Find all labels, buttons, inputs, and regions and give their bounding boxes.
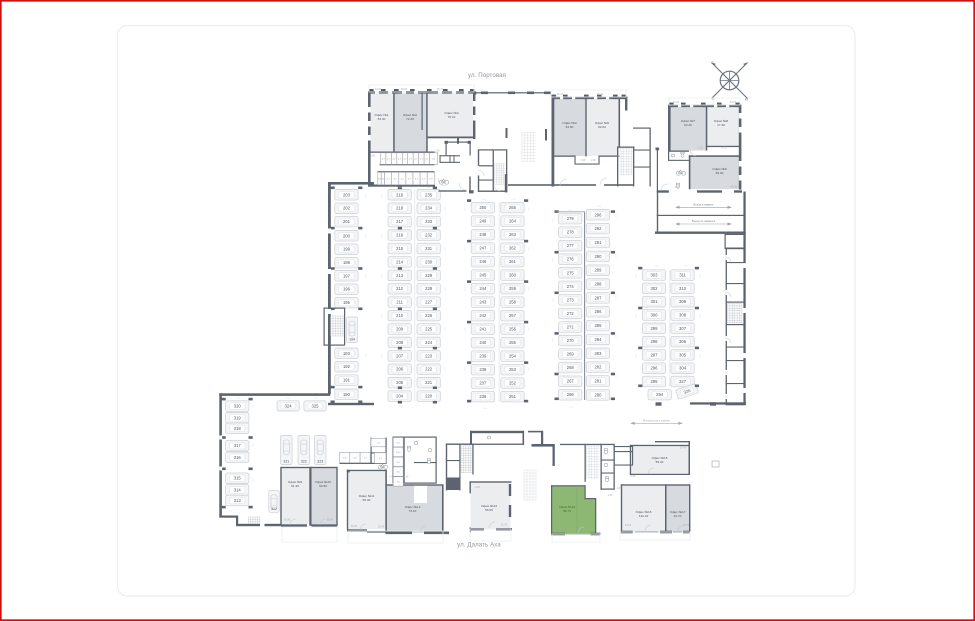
svg-text:192: 192 [343, 364, 351, 369]
svg-text:230: 230 [425, 259, 433, 264]
svg-text:316: 316 [234, 455, 242, 460]
svg-text:193: 193 [343, 351, 351, 356]
svg-text:307: 307 [679, 326, 687, 331]
svg-text:294: 294 [656, 392, 664, 397]
svg-text:268: 268 [567, 365, 575, 370]
svg-text:245: 245 [479, 273, 487, 278]
svg-text:223: 223 [425, 353, 433, 358]
svg-text:229: 229 [425, 273, 433, 278]
svg-text:281: 281 [594, 378, 602, 383]
svg-text:315: 315 [234, 476, 242, 481]
svg-text:54.29: 54.29 [625, 524, 632, 527]
svg-text:44.26: 44.26 [730, 101, 737, 104]
svg-text:69.00: 69.00 [557, 93, 564, 96]
svg-text:56.55: 56.55 [485, 508, 493, 512]
svg-text:319: 319 [234, 415, 242, 420]
svg-text:219: 219 [396, 192, 404, 197]
svg-text:Въезд в паркинг: Въезд в паркинг [693, 202, 713, 206]
svg-text:2.28: 2.28 [475, 486, 480, 489]
svg-text:267: 267 [567, 379, 575, 384]
svg-text:258: 258 [509, 300, 517, 305]
svg-text:257: 257 [509, 313, 517, 318]
svg-text:244: 244 [479, 286, 487, 291]
svg-text:222: 222 [425, 367, 433, 372]
svg-text:207: 207 [396, 353, 404, 358]
svg-text:235: 235 [425, 192, 433, 197]
svg-text:277: 277 [567, 243, 575, 248]
svg-text:306: 306 [679, 339, 687, 344]
svg-text:262: 262 [509, 246, 517, 251]
svg-text:247: 247 [479, 246, 487, 251]
svg-text:214: 214 [396, 259, 404, 264]
svg-text:56.70: 56.70 [563, 509, 571, 513]
svg-text:142.19: 142.19 [639, 514, 649, 518]
svg-text:274: 274 [567, 284, 575, 289]
svg-text:240: 240 [479, 340, 487, 345]
svg-text:296: 296 [594, 212, 602, 217]
svg-text:299: 299 [650, 326, 658, 331]
svg-text:242: 242 [479, 313, 487, 318]
svg-text:237: 237 [479, 381, 487, 386]
svg-text:203: 203 [343, 192, 351, 197]
svg-text:261: 261 [509, 259, 517, 264]
svg-text:1.98: 1.98 [591, 159, 596, 162]
svg-text:73.10: 73.10 [409, 509, 417, 513]
svg-text:92.00: 92.00 [598, 125, 606, 129]
svg-text:252: 252 [509, 381, 517, 386]
svg-text:308: 308 [679, 312, 687, 317]
svg-text:282: 282 [594, 365, 602, 370]
svg-text:59.40: 59.40 [656, 460, 664, 464]
svg-text:260: 260 [509, 273, 517, 278]
svg-text:292: 292 [594, 226, 602, 231]
svg-text:295: 295 [650, 379, 658, 384]
svg-text:42.70: 42.70 [674, 514, 682, 518]
svg-text:301: 301 [650, 299, 658, 304]
svg-text:284: 284 [594, 337, 602, 342]
svg-text:1.86: 1.86 [617, 487, 622, 490]
svg-text:226: 226 [425, 313, 433, 318]
svg-text:212: 212 [396, 286, 404, 291]
svg-text:231: 231 [425, 246, 433, 251]
svg-text:283: 283 [594, 351, 602, 356]
svg-text:238: 238 [479, 367, 487, 372]
svg-text:313: 313 [234, 498, 242, 503]
svg-text:279: 279 [567, 216, 575, 221]
svg-text:Выезд/въезд в паркинг: Выезд/въезд в паркинг [643, 418, 670, 422]
svg-text:11.76: 11.76 [501, 524, 508, 527]
svg-text:296: 296 [650, 366, 658, 371]
svg-text:243: 243 [479, 300, 487, 305]
svg-text:196: 196 [343, 287, 351, 292]
svg-text:62.90: 62.90 [319, 484, 327, 488]
svg-text:266: 266 [567, 392, 575, 397]
svg-text:209: 209 [396, 326, 404, 331]
svg-text:76.70: 76.70 [437, 88, 444, 91]
svg-text:288: 288 [594, 282, 602, 287]
svg-text:263: 263 [509, 232, 517, 237]
svg-text:5.94: 5.94 [631, 475, 636, 478]
svg-text:65.40: 65.40 [363, 498, 371, 502]
svg-text:289: 289 [594, 268, 602, 273]
svg-text:64.30: 64.30 [684, 123, 692, 127]
svg-text:197: 197 [343, 273, 351, 278]
svg-text:324: 324 [285, 403, 293, 408]
svg-text:70.70: 70.70 [683, 524, 690, 527]
svg-text:286: 286 [594, 309, 602, 314]
svg-text:259: 259 [509, 286, 517, 291]
svg-text:250: 250 [479, 205, 487, 210]
svg-text:202: 202 [343, 206, 351, 211]
svg-text:217: 217 [396, 219, 404, 224]
svg-text:273: 273 [567, 297, 575, 302]
svg-text:205: 205 [396, 380, 404, 385]
svg-text:220: 220 [425, 394, 433, 399]
svg-text:323: 323 [317, 459, 323, 463]
svg-text:264: 264 [509, 219, 517, 224]
svg-text:Выезд из паркинга: Выезд из паркинга [692, 219, 716, 223]
svg-text:236: 236 [479, 394, 487, 399]
svg-text:1.29: 1.29 [435, 150, 440, 153]
svg-text:19.20: 19.20 [375, 88, 382, 91]
svg-text:253: 253 [509, 367, 517, 372]
svg-text:276: 276 [567, 257, 575, 262]
svg-text:76.10: 76.10 [448, 115, 456, 119]
svg-text:195: 195 [343, 300, 351, 305]
svg-text:194: 194 [349, 337, 355, 341]
svg-text:278: 278 [567, 230, 575, 235]
svg-text:300: 300 [650, 312, 658, 317]
svg-text:302: 302 [650, 286, 658, 291]
svg-text:211: 211 [396, 300, 403, 305]
svg-text:251: 251 [509, 394, 517, 399]
svg-text:199: 199 [343, 247, 351, 252]
svg-text:75.70: 75.70 [597, 93, 604, 96]
svg-text:280: 280 [594, 392, 602, 397]
svg-text:255: 255 [509, 340, 517, 345]
svg-text:270: 270 [567, 338, 575, 343]
svg-text:291: 291 [594, 240, 602, 245]
svg-text:ул. Портовая: ул. Портовая [468, 72, 506, 79]
svg-text:З: З [712, 97, 714, 101]
svg-text:19.20: 19.20 [673, 101, 680, 104]
svg-text:303: 303 [650, 273, 658, 278]
svg-text:234: 234 [425, 206, 433, 211]
svg-text:256: 256 [509, 327, 517, 332]
svg-text:204: 204 [396, 394, 404, 399]
svg-text:190: 190 [343, 392, 351, 397]
svg-text:241: 241 [479, 327, 487, 332]
svg-text:69.30: 69.30 [716, 171, 724, 175]
svg-text:228: 228 [425, 286, 433, 291]
svg-text:206: 206 [396, 367, 404, 372]
svg-text:325: 325 [312, 403, 320, 408]
svg-text:224: 224 [425, 340, 433, 345]
svg-text:320: 320 [234, 404, 242, 409]
svg-text:216: 216 [396, 233, 404, 238]
svg-text:297: 297 [650, 352, 658, 357]
svg-text:225: 225 [425, 326, 433, 331]
svg-text:191: 191 [343, 378, 351, 383]
svg-text:246: 246 [479, 259, 487, 264]
svg-text:64.50: 64.50 [566, 125, 574, 129]
svg-text:57.94: 57.94 [680, 447, 687, 450]
svg-text:321: 321 [283, 459, 289, 463]
svg-text:53.30: 53.30 [378, 117, 386, 121]
svg-text:198: 198 [343, 260, 351, 265]
svg-text:208: 208 [396, 340, 404, 345]
svg-text:221: 221 [425, 380, 433, 385]
svg-text:309: 309 [679, 299, 687, 304]
svg-text:305: 305 [679, 352, 687, 357]
svg-text:311: 311 [679, 273, 686, 278]
svg-text:312: 312 [271, 507, 277, 511]
svg-text:310: 310 [679, 286, 687, 291]
svg-text:218: 218 [396, 206, 404, 211]
svg-text:210: 210 [396, 313, 404, 318]
svg-text:249: 249 [479, 219, 487, 224]
svg-text:15.30: 15.30 [731, 186, 738, 189]
svg-text:318: 318 [234, 426, 242, 431]
svg-text:200: 200 [343, 233, 351, 238]
svg-text:327: 327 [679, 379, 687, 384]
svg-text:317: 317 [234, 443, 242, 448]
svg-text:304: 304 [679, 366, 687, 371]
svg-text:285: 285 [594, 323, 602, 328]
svg-text:72.30: 72.30 [406, 117, 414, 121]
svg-text:ул. Далать Аха: ул. Далать Аха [457, 542, 501, 549]
svg-text:17.30: 17.30 [717, 123, 725, 127]
svg-text:239: 239 [479, 354, 487, 359]
svg-text:271: 271 [567, 324, 575, 329]
svg-text:275: 275 [567, 270, 575, 275]
svg-text:272: 272 [567, 311, 575, 316]
svg-text:60.06: 60.06 [284, 519, 291, 522]
svg-text:233: 233 [425, 219, 433, 224]
svg-text:4.60: 4.60 [675, 186, 680, 189]
svg-text:213: 213 [396, 273, 404, 278]
svg-text:232: 232 [425, 233, 433, 238]
svg-text:314: 314 [234, 487, 242, 492]
svg-text:55.04: 55.04 [327, 519, 334, 522]
svg-text:248: 248 [479, 232, 487, 237]
svg-text:61.40: 61.40 [291, 484, 299, 488]
svg-text:1.44: 1.44 [389, 476, 394, 479]
svg-text:1.15: 1.15 [698, 147, 703, 150]
svg-text:287: 287 [594, 295, 602, 300]
svg-text:269: 269 [567, 352, 575, 357]
svg-text:0.98: 0.98 [581, 159, 586, 162]
svg-text:227: 227 [425, 300, 433, 305]
svg-text:15.04: 15.04 [378, 526, 385, 529]
svg-text:2.46: 2.46 [608, 494, 613, 497]
svg-text:290: 290 [594, 254, 602, 259]
svg-text:4.50: 4.50 [370, 155, 375, 158]
svg-text:4.20: 4.20 [722, 147, 727, 150]
svg-text:298: 298 [650, 339, 658, 344]
svg-text:68.00: 68.00 [401, 88, 408, 91]
svg-text:1.44: 1.44 [404, 476, 409, 479]
svg-text:254: 254 [509, 354, 517, 359]
svg-text:322: 322 [301, 459, 307, 463]
svg-text:14.05: 14.05 [559, 528, 566, 531]
svg-text:66.06: 66.06 [351, 525, 358, 528]
svg-text:215: 215 [396, 246, 404, 251]
svg-text:201: 201 [343, 219, 351, 224]
svg-text:265: 265 [509, 205, 517, 210]
